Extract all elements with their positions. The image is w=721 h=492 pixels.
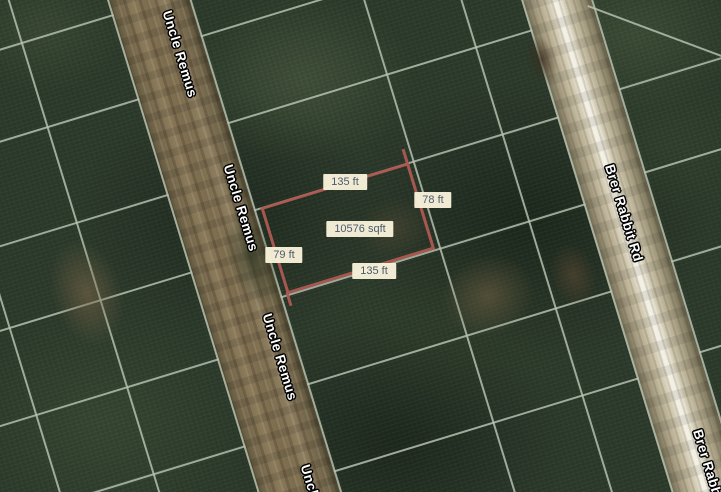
lot-line: [333, 377, 639, 472]
terrain-clearing-patch: [37, 230, 136, 356]
parcel-dimension-left: 79 ft: [265, 247, 302, 263]
parcel-dimension-right: 78 ft: [414, 192, 451, 208]
lot-line: [671, 171, 721, 263]
lot-line: [0, 445, 246, 492]
lot-line: [699, 262, 721, 354]
parcel-dimension-top: 135 ft: [323, 174, 367, 190]
lot-line: [644, 82, 721, 174]
parcel-outline-stub: [402, 149, 410, 165]
parcel-grid-overlay: [0, 0, 721, 492]
terrain-clearing-patch: [431, 244, 545, 348]
terrain-clearing-patch: [542, 238, 604, 313]
lot-line: [227, 29, 533, 124]
parcel-area-label: 10576 sqft: [326, 221, 393, 237]
lot-line: [0, 358, 219, 486]
lot-line: [200, 0, 506, 37]
lot-line: [0, 98, 140, 226]
lot-line: [618, 0, 721, 91]
satellite-map-canvas[interactable]: Uncle Remus Uncle Remus Uncle Remus Uncl…: [0, 0, 721, 492]
parcel-dimension-bottom: 135 ft: [352, 263, 396, 279]
